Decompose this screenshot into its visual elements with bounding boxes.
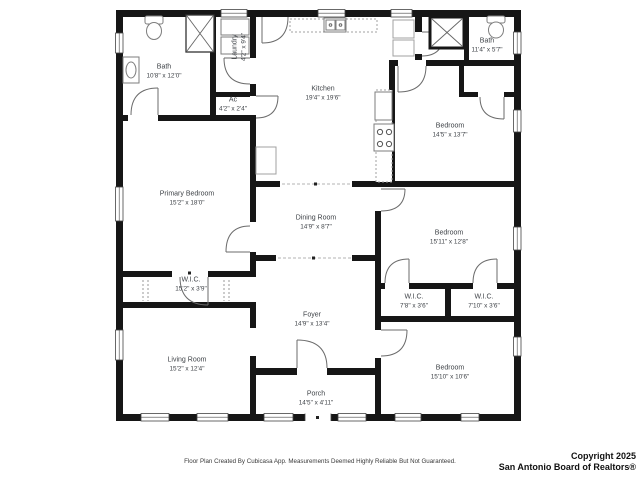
door-icon (381, 330, 407, 356)
wall-laundry-kitchen-2 (250, 84, 256, 96)
wall-foyer-bottom-1 (256, 368, 297, 375)
wall-outer-right (514, 10, 521, 421)
wall-primary-bottom-1 (123, 271, 172, 277)
washer-dryer-icon (221, 19, 249, 54)
door-icon (262, 17, 288, 43)
wall-wic-bottom (123, 302, 256, 308)
wall-wic-top-3 (497, 283, 514, 289)
door-icon (381, 189, 405, 211)
shower-icon (430, 17, 464, 48)
wall-wic-divider (445, 289, 451, 316)
door-icon (473, 259, 497, 283)
utility-box (256, 147, 276, 174)
stove-icon (374, 124, 394, 151)
copyright-line1: Copyright 2025 (499, 451, 636, 462)
door-icon (180, 277, 208, 305)
door-icon (480, 97, 504, 119)
door-icon (398, 66, 426, 92)
wall-primary-bottom-2 (208, 271, 256, 277)
wall-bedroom3-left-1 (375, 316, 381, 330)
wall-foyer-bottom-2 (327, 368, 381, 375)
toilet-icon (487, 16, 505, 38)
floor-plan-canvas (0, 0, 640, 480)
door-icon (385, 259, 409, 283)
walls (116, 10, 521, 421)
wall-wic-band-bottom (381, 316, 514, 322)
pantry-cabinet (393, 20, 414, 56)
closet-rods (143, 280, 229, 301)
wall-closet-bottom-1 (459, 92, 478, 97)
wall-dining-foyer-stub-r (352, 255, 381, 261)
wall-bath-bottom-2 (158, 115, 256, 121)
door-icon (131, 88, 158, 115)
sink-icon (123, 57, 139, 83)
wall-kitchen-dining-stub-l (250, 181, 280, 187)
door-icon (226, 226, 250, 252)
footer-disclaimer: Floor Plan Created By Cubicasa App. Meas… (184, 458, 456, 465)
wall-laundry-ac-divider (216, 92, 250, 97)
window-mullions (119, 13, 517, 417)
wall-dining-right-2 (375, 211, 381, 287)
wall-wic-top-2 (409, 283, 473, 289)
wall-living-right-1 (250, 308, 256, 328)
wall-bath-bottom-1 (123, 115, 128, 121)
wall-primary-right-1 (250, 121, 256, 222)
door-icon (224, 58, 250, 84)
wall-wic-top-1 (381, 283, 385, 289)
fridge-icon (375, 92, 392, 120)
wall-bedroom1-bottom (381, 181, 514, 187)
open-boundaries (278, 184, 352, 258)
wall-topright-strip-2 (426, 60, 514, 66)
kitchen-counter (290, 18, 377, 32)
wall-dining-foyer-stub-l (250, 255, 276, 261)
fixtures (123, 15, 505, 182)
wall-foyer-right (375, 287, 381, 316)
wall-kitchen-topright-2 (415, 54, 422, 60)
toilet-icon (145, 16, 163, 40)
door-icon (256, 96, 278, 118)
shower-icon (186, 15, 214, 52)
footer-copyright: Copyright 2025 San Antonio Board of Real… (499, 451, 636, 474)
wall-kitchen-topright-1 (415, 17, 422, 32)
door-icon (297, 340, 327, 368)
floor-plan-page: Bath 10'8" x 12'0" Laundry 4'2" x 9'4" A… (0, 0, 640, 480)
wall-living-right-2 (250, 356, 256, 414)
wall-bedroom3-left-2 (375, 358, 381, 414)
wall-closet-left (459, 66, 464, 92)
copyright-line2: San Antonio Board of Realtors® (499, 462, 636, 473)
wall-closet-bottom-2 (504, 92, 514, 97)
wall-laundry-kitchen-1 (250, 17, 256, 58)
wall-topright-strip-1 (389, 60, 398, 66)
